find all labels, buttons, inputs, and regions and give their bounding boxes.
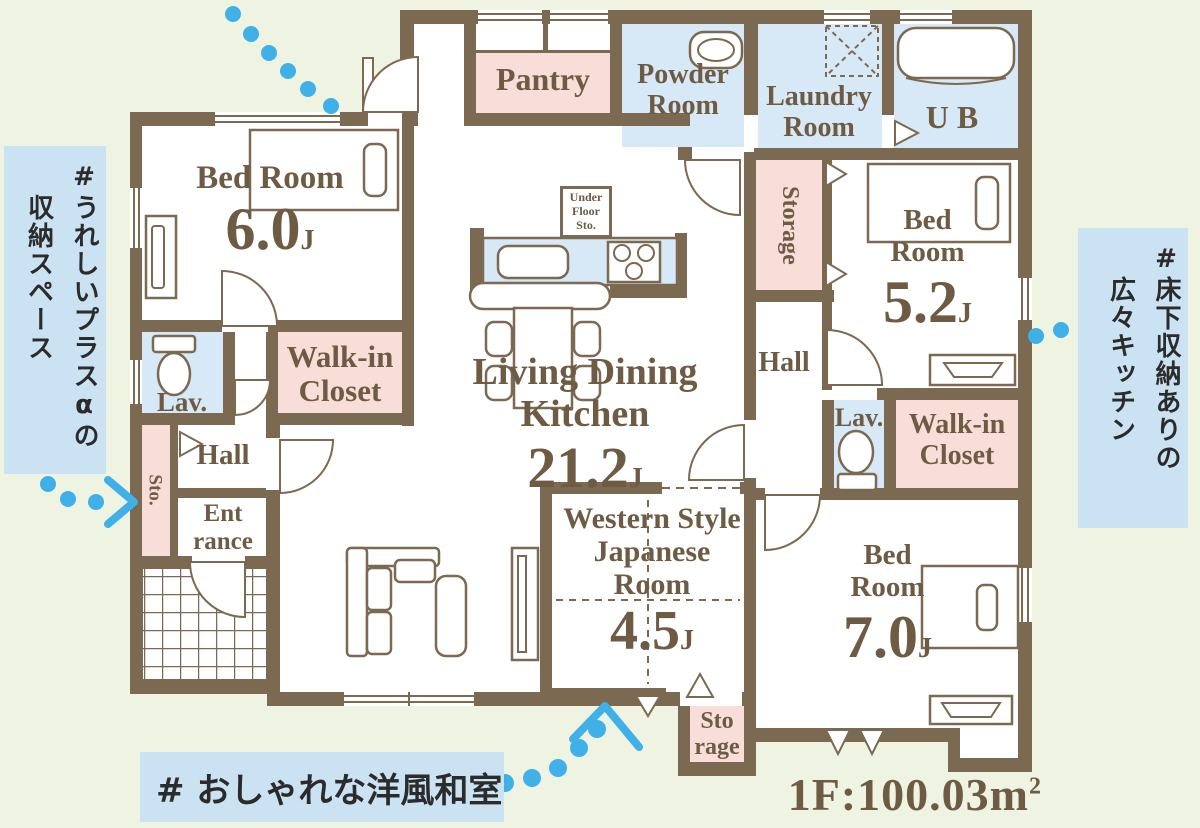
storage-west-label: Sto. [138,430,172,550]
room-name: Living Dining Kitchen [440,352,730,436]
annotation-right: #床下収納ありの 広々キッチン [1078,228,1188,528]
storage-south-label: Sto rage [690,708,744,761]
tv-board-icon [930,696,1012,724]
room-size: 21.2J [440,436,730,500]
window-bedroom-e-right [1018,278,1032,320]
room-name: Bed Room [833,540,943,604]
room-size: 6.0J [170,196,370,262]
dotted-line-top-left [225,6,339,114]
walkin-closet-west-label: Walk-in Closet [276,340,404,408]
room-size: 5.2J [835,269,1020,335]
stove-icon [608,242,660,282]
room-name: Bed Room [170,160,370,196]
room-size: 7.0J [795,604,980,670]
toilet-icon [838,431,876,490]
walkin-closet-east-label: Walk-in Closet [894,410,1020,472]
storage-east-label: Storage [756,160,822,290]
japanese-room-label: Western Style Japanese Room 4.5J [562,502,742,663]
room-name: Western Style Japanese Room [562,502,742,601]
entrance-label: Ent rance [178,500,268,555]
lavatory-west-label: Lav. [140,388,224,418]
living-table-icon [436,576,466,656]
bedroom-e-label: Bed Room 5.2J [835,205,1020,335]
window-bath-top [900,10,952,24]
floor-plan-page: Bed Room 6.0J Living Dining Kitchen 21.2… [0,0,1200,828]
pantry-label: Pantry [476,62,610,97]
underfloor-storage-label: Under Floor Sto. [560,186,612,238]
tv-board-icon [930,355,1015,385]
laundry-room-label: Laundry Room [754,82,884,144]
annotation-left: #うれしいプラスαの 収納スペース [4,146,106,474]
window-living-bottom [344,692,474,706]
hall-east-label: Hall [744,348,824,379]
annotation-bottom: # おしゃれな洋風和室 [140,752,504,822]
window-bedroom-se-right [1018,568,1032,622]
window-laundry-top [824,10,870,24]
bathtub-icon [898,28,1014,84]
tv-board-icon [512,548,538,660]
unit-bath-label: UB [894,100,1018,135]
ldk-label: Living Dining Kitchen 21.2J [440,352,730,499]
bedroom-nw-label: Bed Room 6.0J [170,160,370,262]
room-name: Bed Room [873,205,983,269]
bedroom-se-label: Bed Room 7.0J [795,540,980,670]
room-size: 4.5J [562,601,742,663]
hall-west-label: Hall [178,440,268,472]
lavatory-east-label: Lav. [826,404,892,433]
powder-room-label: Powder Room [618,60,748,122]
floor-area-label: 1F:100.03m2 [690,768,1042,821]
window-bedroom-nw-top [215,112,340,126]
window-bedroom-nw-left [130,188,142,248]
